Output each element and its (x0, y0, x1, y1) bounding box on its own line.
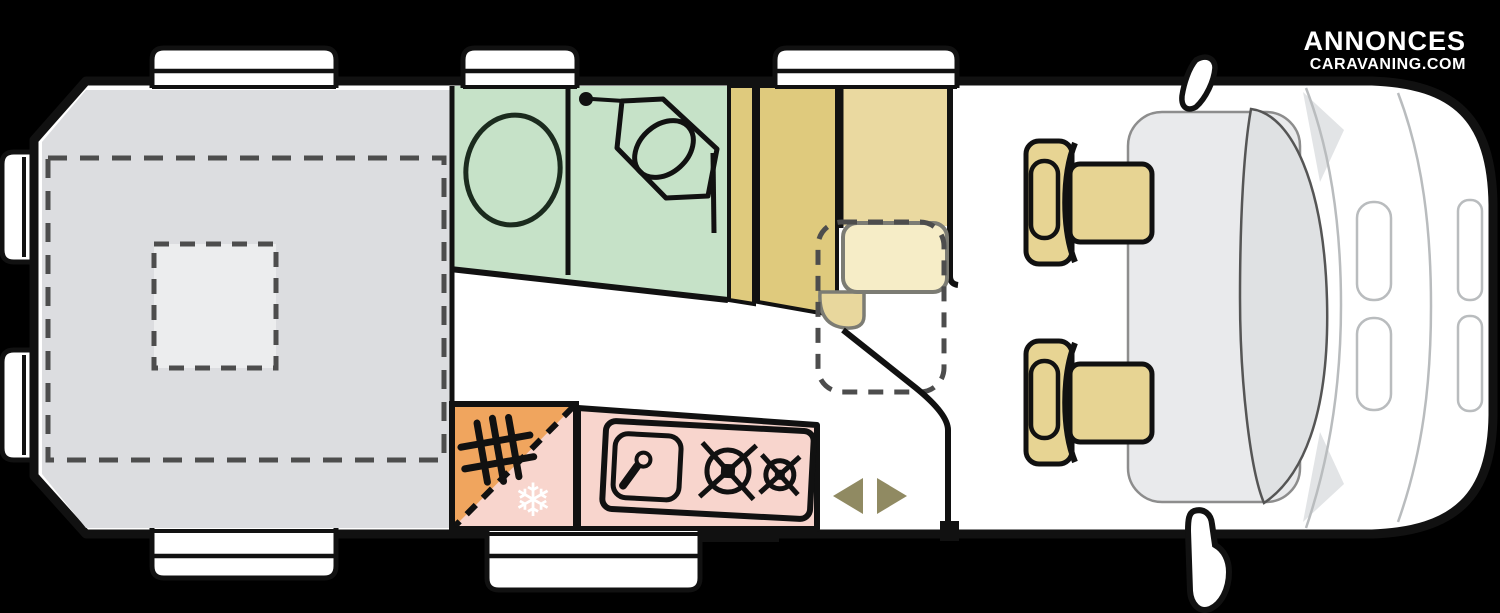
snowflake-icon: ❄ (514, 473, 553, 527)
window-top-1 (152, 48, 336, 88)
window-top-3 (775, 48, 957, 88)
shower-head (579, 92, 593, 106)
dinette-backrest (841, 86, 949, 226)
wardrobe-panel-2 (758, 86, 837, 316)
window-bottom-2 (487, 531, 700, 590)
burner-large (700, 443, 757, 500)
floorplan-page: ❄ (0, 0, 1500, 613)
logo-line2: CARAVANING.COM (1303, 57, 1466, 73)
burner-small (760, 455, 800, 495)
fridge-heater-unit: ❄ (452, 404, 576, 529)
wardrobe-panel-1 (729, 86, 754, 304)
faucet (636, 452, 651, 467)
campervan-floorplan: ❄ (0, 0, 1500, 613)
brand-logo: ANNONCES CARAVANING.COM (1303, 28, 1466, 73)
dinette-cushion (843, 223, 947, 292)
window-bottom-1 (152, 528, 336, 578)
kitchen-counter (578, 408, 817, 529)
window-top-2 (463, 48, 577, 88)
logo-line1: ANNONCES (1303, 28, 1466, 55)
roof-vent-dashed (154, 244, 276, 368)
shower-head-arm (592, 99, 624, 101)
